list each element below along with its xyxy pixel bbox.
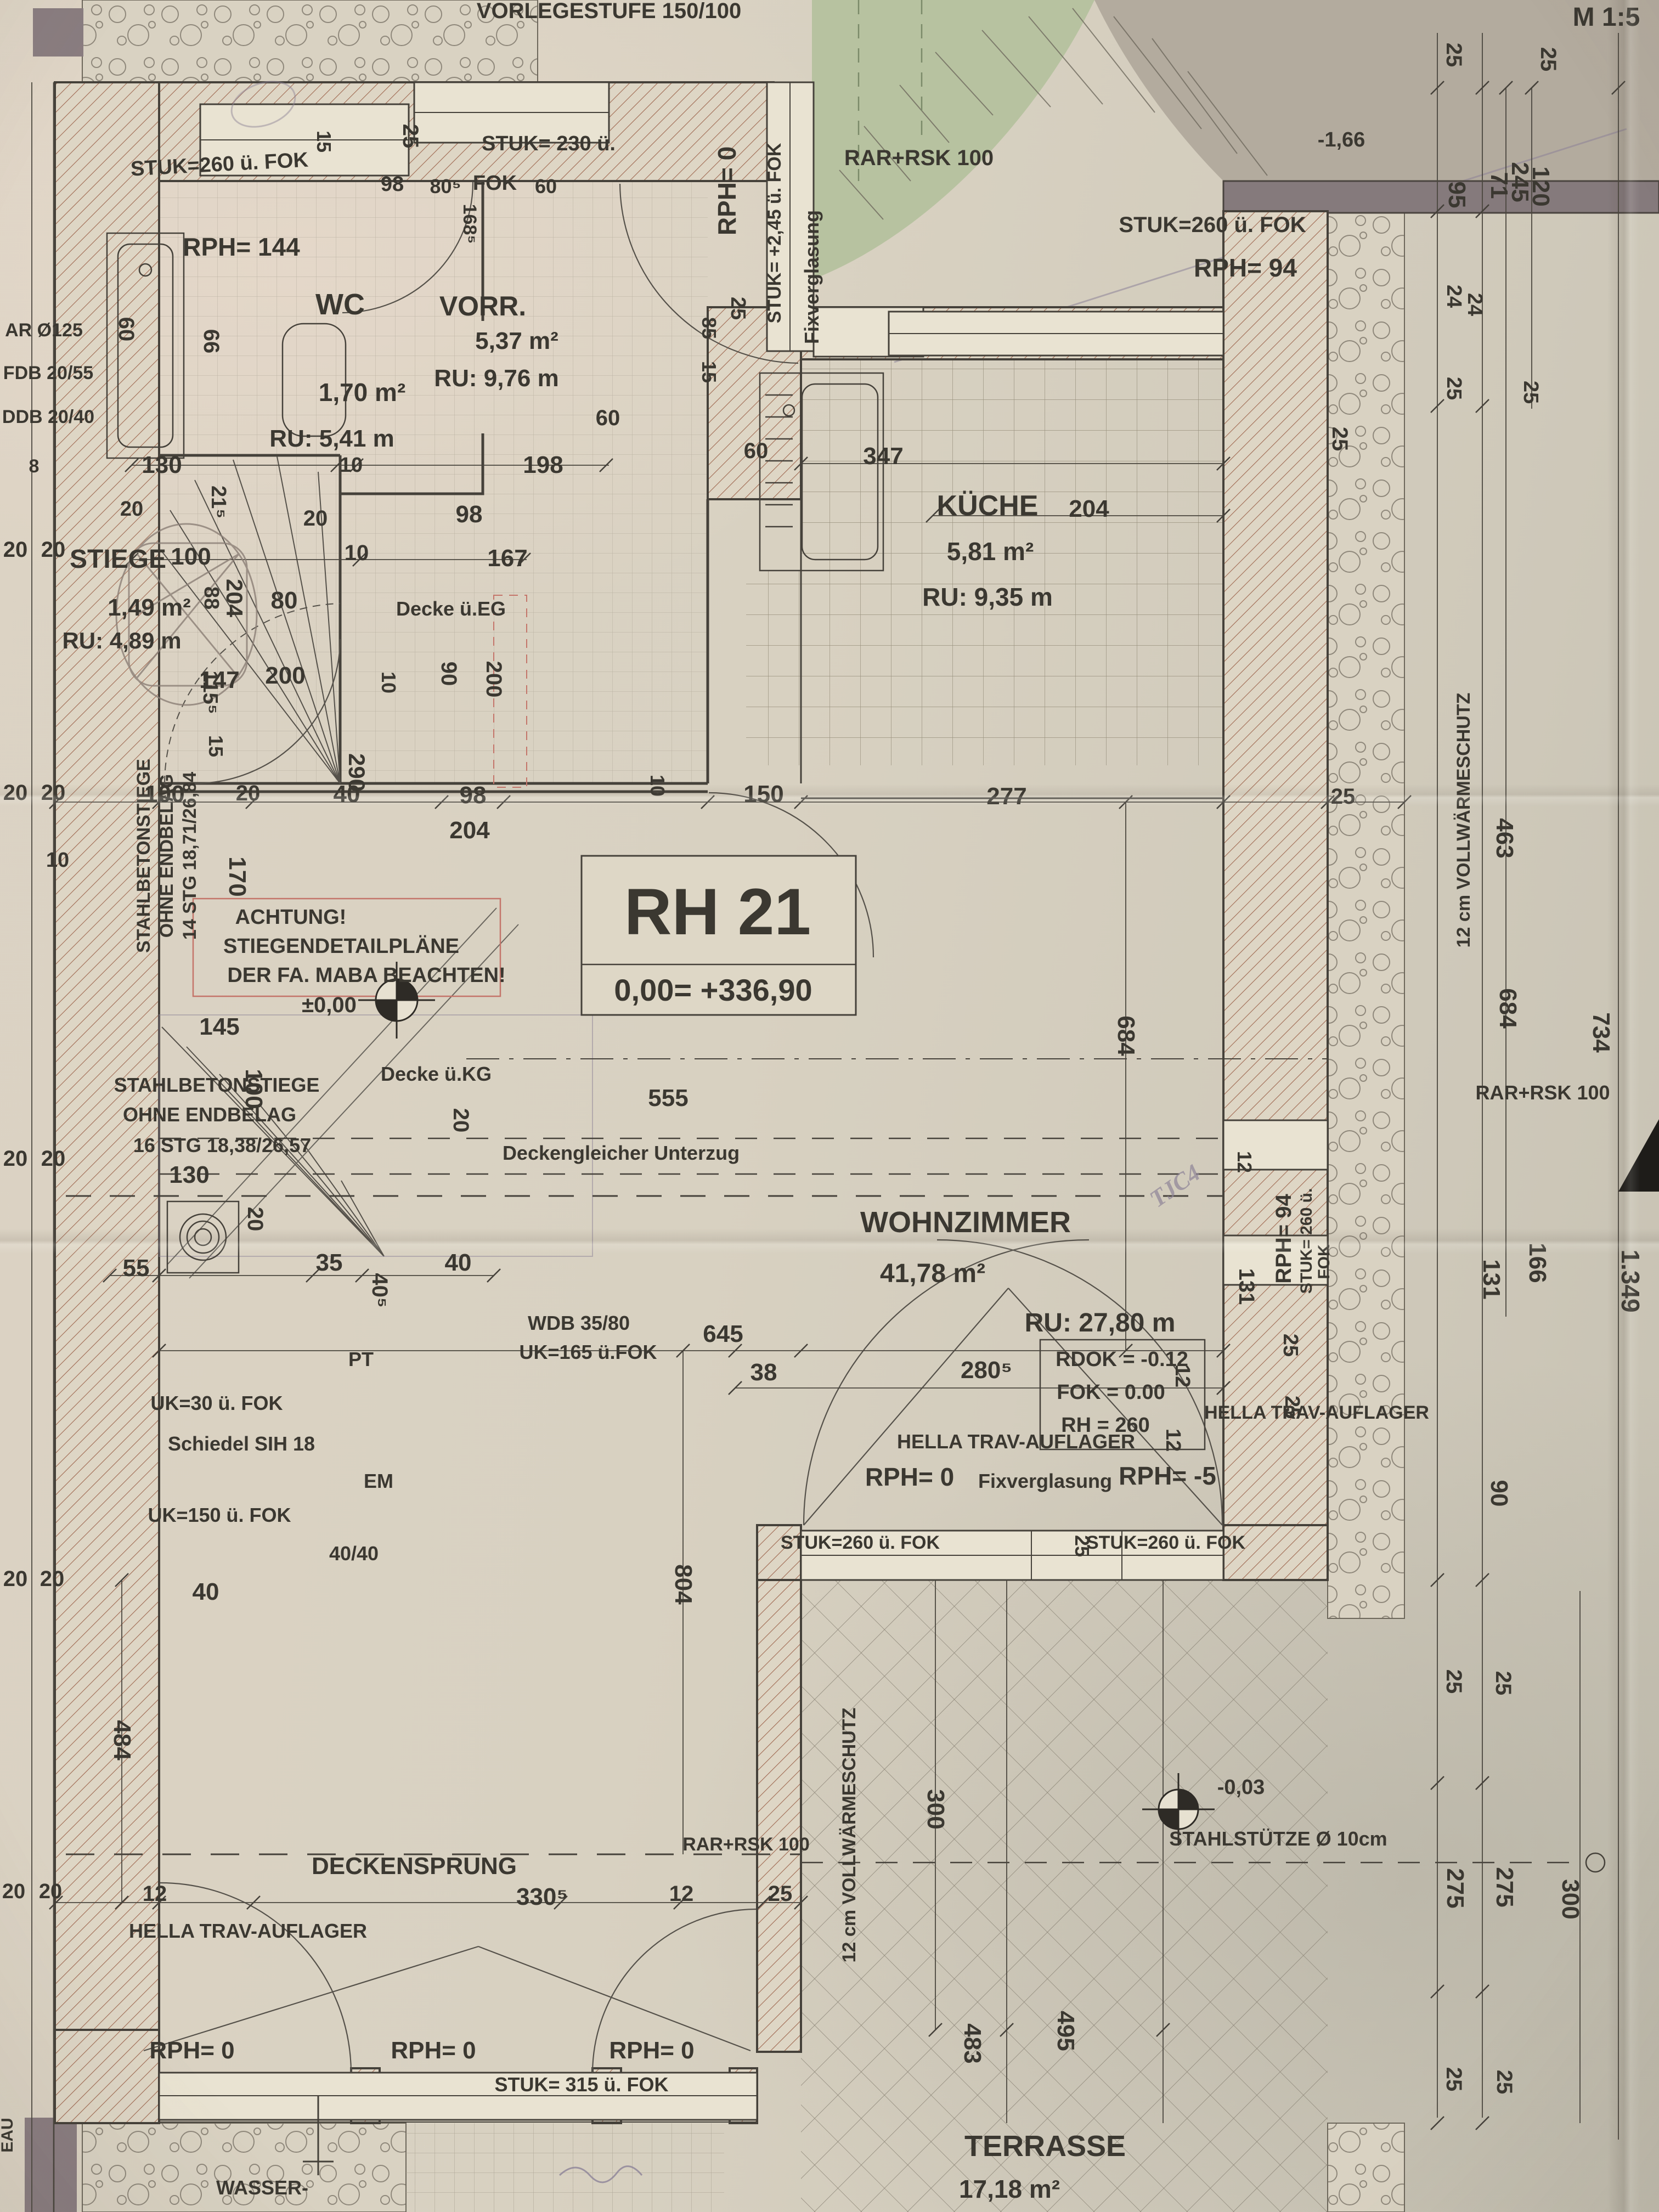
dim: 20 [450, 1108, 472, 1133]
dim: 25 [399, 124, 421, 149]
dim: 95 [1444, 182, 1469, 208]
label-stahlbetonstiege-16-1: STAHLBETONSTIEGE [114, 1075, 320, 1095]
dim: 150 [743, 782, 783, 806]
label-scale: M 1:5 [1573, 4, 1640, 31]
label-stuk260-side: STUK= 260 ü. [1299, 1188, 1315, 1294]
room-terrasse-name: TERRASSE [964, 2131, 1126, 2161]
dim: 40 [445, 1251, 472, 1275]
room-stiege-ru: RU: 4,89 m [62, 629, 181, 652]
dim: 98 [460, 783, 487, 808]
label-rph-minus5: RPH= -5 [1119, 1463, 1216, 1488]
dim: 24 [1443, 285, 1464, 308]
level-minus166: -1,66 [1318, 129, 1365, 150]
dim: 10 [647, 775, 667, 797]
dim: 684 [1114, 1015, 1138, 1056]
label-stuk315: STUK= 315 ü. FOK [494, 2075, 668, 2095]
dim: 15 [206, 735, 225, 757]
label-rph0-b2: RPH= 0 [391, 2039, 476, 2063]
dim: 80⁵ [430, 177, 461, 196]
label-wdb: WDB 35/80 [528, 1313, 630, 1333]
dim: 60 [535, 177, 557, 196]
dim: 20 [40, 1568, 65, 1590]
dim: 275 [1492, 1867, 1516, 1907]
dim: 10 [46, 850, 69, 871]
dim: 204 [1069, 497, 1109, 521]
dim: 10 [379, 672, 398, 693]
dim: 20 [2, 1881, 25, 1902]
note-fok: FOK = 0.00 [1057, 1382, 1165, 1403]
label-hella-1: HELLA TRAV-AUFLAGER [1204, 1403, 1429, 1422]
level-minus003: -0,03 [1217, 1777, 1265, 1798]
dim: 204 [223, 579, 246, 617]
label-wdb-uk: UK=165 ü.FOK [519, 1342, 657, 1362]
dim: 25 [1443, 43, 1465, 67]
label-deckensprung: DECKENSPRUNG [312, 1854, 517, 1878]
label-rph144: RPH= 144 [183, 234, 300, 259]
note-achtung-1: ACHTUNG! [235, 907, 347, 928]
dim: 684 [1496, 988, 1520, 1028]
room-wc-name: WC [315, 290, 365, 319]
dim: 25 [1443, 1669, 1465, 1694]
dim: 20 [3, 1148, 28, 1170]
label-fixverglasung-bottom: Fixverglasung [978, 1471, 1112, 1491]
dim: 275 [1443, 1868, 1467, 1908]
label-fdb: FDB 20/55 [3, 364, 93, 382]
dim: 25 [1329, 427, 1351, 452]
room-wohnzimmer-area: 41,78 m² [880, 1261, 985, 1287]
dim: 484 [110, 1720, 134, 1760]
label-stuk260-topleft: STUK=260 ü. FOK [130, 150, 309, 180]
label-unterzug: Deckengleicher Unterzug [503, 1143, 740, 1163]
dim: 12 [1234, 1151, 1254, 1173]
dim: 10 [340, 455, 363, 476]
dim: 60 [744, 440, 769, 462]
level-pm000: ±0,00 [302, 994, 357, 1016]
dim: 12 [143, 1883, 167, 1905]
dim: 200 [483, 661, 505, 698]
label-stuk260-side2: FOK [1316, 1244, 1333, 1279]
dim: 280⁵ [961, 1358, 1012, 1383]
label-stahlbetonstiege-14-3: 14 STG 18,71/26,84 [180, 772, 199, 940]
label-rph94-kitchen: RPH= 94 [1194, 255, 1297, 280]
label-ddb: DDB 20/40 [2, 408, 94, 426]
dim: 35 [316, 1251, 343, 1275]
label-vollwaerme-bottom: 12 cm VOLLWÄRMESCHUTZ [840, 1708, 859, 1963]
dim: 120 [1528, 166, 1553, 206]
dim: 20 [236, 782, 261, 804]
dim: 463 [1492, 818, 1516, 858]
room-stiege-name: STIEGE [70, 546, 166, 573]
dim: 168⁵ [460, 204, 479, 244]
dim: 495 [1053, 2011, 1077, 2051]
dim: 90 [438, 662, 460, 686]
dim: 25 [727, 297, 748, 320]
dim: 734 [1589, 1012, 1613, 1052]
room-vorr-area: 5,37 m² [475, 329, 558, 353]
dim: 20 [120, 499, 143, 520]
label-stahlbetonstiege-16-3: 16 STG 18,38/26,57 [133, 1136, 311, 1155]
room-kueche-ru: RU: 9,35 m [922, 584, 1053, 610]
room-terrasse-area: 17,18 m² [959, 2176, 1060, 2202]
label-schiedel: Schiedel SIH 18 [168, 1434, 315, 1454]
dim: 12 [1163, 1429, 1183, 1452]
room-vorr-ru: RU: 9,76 m [434, 366, 558, 391]
dim: 38 [751, 1361, 777, 1385]
dim: 130 [142, 453, 182, 477]
dim: 20 [3, 539, 28, 561]
dim: 60 [596, 407, 620, 429]
label-decke-kg: Decke ü.KG [381, 1064, 492, 1084]
dim: 20 [41, 1148, 66, 1170]
room-wc-area: 1,70 m² [319, 380, 406, 405]
dim: 12 [1172, 1364, 1193, 1387]
note-achtung-3: DER FA. MABA BEACHTEN! [227, 965, 505, 986]
dim: 80 [271, 589, 298, 613]
dim: 166 [1525, 1243, 1549, 1283]
room-kueche-name: KÜCHE [937, 492, 1039, 520]
label-vollwaerme-right: 12 cm VOLLWÄRMESCHUTZ [1454, 693, 1473, 948]
dim: 131 [1479, 1259, 1503, 1299]
note-achtung-2: STIEGENDETAILPLÄNE [223, 936, 459, 957]
plan-id: RH 21 [624, 879, 811, 945]
dim: 15 [314, 131, 334, 153]
dim: 98 [381, 174, 404, 195]
dim: 15 [699, 361, 719, 383]
label-rar-rsk-bottom: RAR+RSK 100 [682, 1835, 809, 1854]
label-stuk260-kitchen: STUK=260 ü. FOK [1119, 214, 1306, 236]
dim: 25 [1520, 381, 1541, 404]
label-em: EM [364, 1471, 393, 1491]
dim: 20 [41, 782, 66, 804]
label-decke-eg: Decke ü.EG [396, 599, 506, 619]
label-stahlbetonstiege-16-2: OHNE ENDBELAG [123, 1105, 296, 1125]
dim: 131 [1235, 1268, 1257, 1305]
dim: 277 [986, 785, 1026, 809]
dim: 555 [648, 1086, 688, 1110]
dim: 20 [3, 1568, 28, 1590]
room-wohnzimmer-name: WOHNZIMMER [860, 1207, 1071, 1237]
dim: 10 [345, 542, 369, 564]
dim: 204 [449, 819, 489, 843]
label-eau-partial: EAU [0, 2118, 16, 2152]
label-stahlbetonstiege-14-2: OHNE ENDBELAG [157, 774, 176, 938]
label-ar125: AR Ø125 [5, 321, 83, 340]
label-wasser: WASSER- [216, 2178, 308, 2198]
room-wc-ru: RU: 5,41 m [269, 427, 394, 451]
room-wohnzimmer-ru: RU: 27,80 m [1025, 1310, 1176, 1336]
dim: 20 [3, 782, 28, 804]
dim: 25 [1282, 1396, 1302, 1419]
dim: 20 [244, 1207, 266, 1232]
dim: 25 [1443, 2067, 1465, 2092]
label-pt-uk: UK=30 ü. FOK [150, 1393, 283, 1413]
plan-labels: VORLEGESTUFE 150/100STUK=260 ü. FOK1525S… [0, 0, 1659, 2212]
dim: 8 [29, 457, 39, 476]
room-vorr-name: VORR. [439, 292, 526, 320]
dim: 55 [123, 1256, 150, 1280]
label-hella-2: HELLA TRAV-AUFLAGER [897, 1432, 1135, 1452]
dim: 300 [1558, 1879, 1582, 1919]
label-rar-rsk-top: RAR+RSK 100 [844, 147, 994, 169]
label-stuk230-line2: FOK [473, 173, 517, 194]
dim: 40 [334, 782, 360, 806]
label-hella-3: HELLA TRAV-AUFLAGER [129, 1921, 367, 1941]
label-stahlstuetze: STAHLSTÜTZE Ø 10cm [1169, 1829, 1387, 1849]
label-stahlbetonstiege-14-1: STAHLBETONSTIEGE [134, 759, 153, 953]
dim: 167 [487, 546, 527, 571]
dim: 25 [1537, 47, 1559, 72]
label-rph0-b3: RPH= 0 [609, 2039, 694, 2063]
dim: 347 [863, 444, 903, 469]
dim: 645 [703, 1322, 743, 1346]
dim: 170 [225, 856, 249, 896]
label-stuk260-win1: STUK=260 ü. FOK [781, 1533, 940, 1552]
dim: 483 [960, 2023, 984, 2063]
dim: 1.349 [1618, 1249, 1643, 1312]
dim: 330⁵ [516, 1885, 568, 1909]
dim: 25 [1280, 1334, 1301, 1357]
dim: 20 [41, 539, 66, 561]
label-rph0-window1: RPH= 0 [865, 1464, 954, 1489]
dim: 25 [1331, 786, 1356, 808]
dim: 12 [669, 1883, 694, 1905]
note-rdok: RDOK = -0.12 [1056, 1349, 1188, 1370]
label-rar-rsk-right: RAR+RSK 100 [1475, 1083, 1610, 1103]
label-vorlegestufe: VORLEGESTUFE 150/100 [477, 0, 741, 22]
dim: 130 [169, 1163, 209, 1187]
dim: 20 [303, 507, 328, 529]
dim: 21⁵ [208, 486, 229, 518]
dim: 60 [115, 317, 137, 342]
dim: 90 [1487, 1480, 1511, 1507]
dim: 98 [456, 503, 483, 527]
floor-plan-photo: VORLEGESTUFE 150/100STUK=260 ü. FOK1525S… [0, 0, 1659, 2212]
plan-level: 0,00= +336,90 [614, 975, 812, 1006]
dim: 147 [199, 668, 239, 692]
label-fixverglasung-top: Fixverglasung [802, 210, 822, 344]
dim: 20 [39, 1881, 62, 1902]
label-stuk230-line1: STUK= 230 ü. [482, 133, 616, 154]
room-kueche-area: 5,81 m² [947, 539, 1034, 564]
label-rph0-top: RPH= 0 [714, 146, 740, 235]
dim: 300 [923, 1789, 947, 1829]
dim: 40⁵ [369, 1273, 391, 1307]
label-rph94-side: RPH= 94 [1273, 1194, 1295, 1283]
label-4040: 40/40 [329, 1544, 379, 1564]
label-rph0-b1: RPH= 0 [149, 2039, 234, 2063]
label-stuk245: STUK= +2,45 ü. FOK [765, 143, 784, 324]
dim: 40 [193, 1580, 219, 1604]
dim: 25 [1492, 1671, 1514, 1696]
dim: 804 [671, 1564, 695, 1604]
pencil-note: TJC4 [1145, 1160, 1204, 1212]
dim: 88 [201, 586, 222, 610]
dim: 25 [1493, 2070, 1515, 2095]
room-stiege-area: 1,49 m² [108, 596, 191, 620]
label-stuk260-win2: STUK=260 ü. FOK [1086, 1533, 1245, 1552]
dim: 25 [768, 1883, 793, 1905]
dim: 25 [1443, 377, 1464, 400]
dim: 200 [265, 664, 305, 688]
label-pt: PT [348, 1350, 374, 1369]
dim: 66 [200, 329, 222, 354]
dim: 85 [699, 317, 719, 339]
dim: 100 [171, 545, 211, 569]
label-em-uk: UK=150 ü. FOK [148, 1505, 291, 1525]
dim: 24 [1464, 293, 1485, 316]
dim: 198 [523, 453, 563, 477]
dim: 145 [199, 1015, 239, 1039]
